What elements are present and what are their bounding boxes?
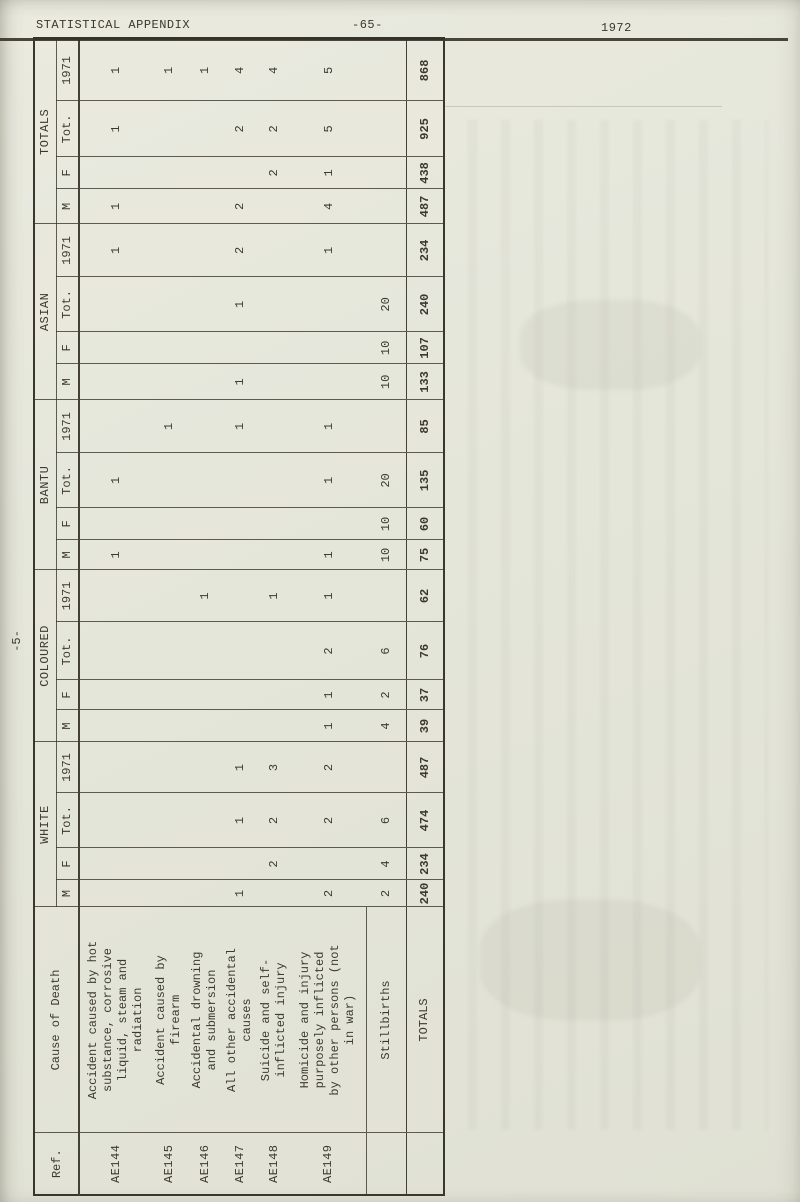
value-cell-asian-1971	[151, 224, 186, 277]
value-cell-bantu-tot	[256, 453, 291, 508]
value-cell-totals-1971: 4	[223, 39, 256, 101]
row-ref: AE145	[151, 1133, 186, 1195]
value-cell-white-tot: 1	[223, 793, 256, 848]
value-cell-asian-tot: 240	[406, 277, 444, 332]
value-cell-asian-m: 1	[223, 364, 256, 400]
row-ref	[366, 1133, 406, 1195]
value-cell-bantu-tot: 1	[79, 453, 151, 508]
row-ref: AE148	[256, 1133, 291, 1195]
value-cell-asian-tot: 20	[366, 277, 406, 332]
value-cell-white-1971	[151, 742, 186, 793]
value-cell-white-m	[79, 880, 151, 907]
value-cell-bantu-f	[151, 508, 186, 540]
value-cell-bantu-m	[186, 540, 223, 570]
value-cell-bantu-1971	[366, 400, 406, 453]
sub-header-totals-m: M	[56, 189, 79, 224]
faint-ruling-line	[444, 106, 722, 107]
value-cell-coloured-tot	[186, 622, 223, 680]
row-cause-of-death: Accident caused by firearm	[151, 907, 186, 1133]
group-header-asian: ASIAN	[34, 224, 56, 400]
group-header-totals: TOTALS	[34, 39, 56, 224]
value-cell-bantu-m	[223, 540, 256, 570]
value-cell-coloured-f	[256, 680, 291, 710]
value-cell-white-f	[223, 848, 256, 880]
value-cell-coloured-f: 37	[406, 680, 444, 710]
value-cell-asian-m	[151, 364, 186, 400]
value-cell-totals-f	[186, 157, 223, 189]
value-cell-totals-m	[186, 189, 223, 224]
value-cell-coloured-1971: 1	[291, 570, 366, 622]
value-cell-asian-f: 10	[366, 332, 406, 364]
value-cell-asian-tot: 1	[223, 277, 256, 332]
value-cell-bantu-1971: 85	[406, 400, 444, 453]
value-cell-totals-1971: 5	[291, 39, 366, 101]
sub-header-asian-m: M	[56, 364, 79, 400]
page-header: STATISTICAL APPENDIX -65- 1972	[0, 18, 800, 38]
value-cell-coloured-m	[186, 710, 223, 742]
value-cell-white-1971: 487	[406, 742, 444, 793]
value-cell-asian-tot	[79, 277, 151, 332]
value-cell-asian-m: 10	[366, 364, 406, 400]
value-cell-asian-1971: 2	[223, 224, 256, 277]
value-cell-coloured-m	[256, 710, 291, 742]
sub-header-white-m: M	[56, 880, 79, 907]
table-row: AE149Homicide and injury purposely infli…	[291, 39, 366, 1195]
value-cell-asian-1971	[366, 224, 406, 277]
value-cell-white-f	[186, 848, 223, 880]
value-cell-totals-tot: 2	[256, 101, 291, 157]
sub-header-coloured-m: M	[56, 710, 79, 742]
value-cell-bantu-m: 75	[406, 540, 444, 570]
value-cell-white-m: 2	[291, 880, 366, 907]
value-cell-white-m	[186, 880, 223, 907]
value-cell-totals-f	[151, 157, 186, 189]
value-cell-asian-f	[256, 332, 291, 364]
value-cell-coloured-tot: 2	[291, 622, 366, 680]
value-cell-totals-f	[223, 157, 256, 189]
value-cell-totals-f	[79, 157, 151, 189]
rotated-table-region: Ref.Cause of DeathWHITECOLOUREDBANTUASIA…	[33, 40, 443, 1196]
value-cell-totals-1971: 868	[406, 39, 444, 101]
value-cell-coloured-tot	[256, 622, 291, 680]
value-cell-asian-tot	[256, 277, 291, 332]
sheet-margin-label: -5-	[10, 630, 24, 652]
value-cell-coloured-tot: 6	[366, 622, 406, 680]
value-cell-white-m	[151, 880, 186, 907]
bleed-through-ghost	[480, 900, 700, 1020]
value-cell-asian-m	[79, 364, 151, 400]
table-row: AE145Accident caused by firearm11	[151, 39, 186, 1195]
table-row: Stillbirths246426101020101020	[366, 39, 406, 1195]
col-header-ref: Ref.	[34, 1133, 79, 1195]
table-row: AE147All other accidental causes11111122…	[223, 39, 256, 1195]
row-ref: AE149	[291, 1133, 366, 1195]
value-cell-coloured-tot	[79, 622, 151, 680]
value-cell-coloured-1971: 1	[256, 570, 291, 622]
value-cell-white-f: 234	[406, 848, 444, 880]
value-cell-coloured-f	[186, 680, 223, 710]
row-cause-of-death: All other accidental causes	[223, 907, 256, 1133]
value-cell-asian-1971: 234	[406, 224, 444, 277]
value-cell-bantu-1971: 1	[223, 400, 256, 453]
value-cell-asian-tot	[186, 277, 223, 332]
value-cell-coloured-tot	[151, 622, 186, 680]
sub-header-coloured-tot: Tot.	[56, 622, 79, 680]
sub-header-asian-tot: Tot.	[56, 277, 79, 332]
value-cell-white-f	[79, 848, 151, 880]
value-cell-asian-m: 133	[406, 364, 444, 400]
value-cell-totals-m	[256, 189, 291, 224]
table-row: AE144Accident caused by hot substance, c…	[79, 39, 151, 1195]
value-cell-totals-1971: 4	[256, 39, 291, 101]
value-cell-totals-tot	[151, 101, 186, 157]
value-cell-totals-f: 438	[406, 157, 444, 189]
value-cell-bantu-1971	[256, 400, 291, 453]
row-cause-of-death: Homicide and injury purposely inflicted …	[291, 907, 366, 1133]
value-cell-white-f	[151, 848, 186, 880]
value-cell-asian-m	[256, 364, 291, 400]
value-cell-asian-tot	[291, 277, 366, 332]
value-cell-coloured-1971	[223, 570, 256, 622]
value-cell-asian-m	[186, 364, 223, 400]
row-ref	[406, 1133, 444, 1195]
value-cell-asian-f	[186, 332, 223, 364]
value-cell-bantu-m	[256, 540, 291, 570]
sub-header-bantu-m: M	[56, 540, 79, 570]
value-cell-totals-1971: 1	[186, 39, 223, 101]
value-cell-totals-1971: 1	[79, 39, 151, 101]
sub-header-bantu-f: F	[56, 508, 79, 540]
group-header-bantu: BANTU	[34, 400, 56, 570]
scanned-document-page: { "page": { "header_left": "STATISTICAL …	[0, 0, 800, 1202]
sub-header-white-tot: Tot.	[56, 793, 79, 848]
value-cell-totals-m	[151, 189, 186, 224]
value-cell-coloured-m	[223, 710, 256, 742]
row-cause-of-death: Stillbirths	[366, 907, 406, 1133]
row-ref: AE146	[186, 1133, 223, 1195]
value-cell-white-1971	[366, 742, 406, 793]
group-header-white: WHITE	[34, 742, 56, 907]
value-cell-bantu-1971	[186, 400, 223, 453]
value-cell-coloured-m: 4	[366, 710, 406, 742]
sub-header-coloured-1971: 1971	[56, 570, 79, 622]
row-ref: AE147	[223, 1133, 256, 1195]
value-cell-totals-m: 487	[406, 189, 444, 224]
value-cell-bantu-tot	[151, 453, 186, 508]
value-cell-white-tot: 2	[291, 793, 366, 848]
value-cell-coloured-f	[223, 680, 256, 710]
value-cell-white-tot	[79, 793, 151, 848]
col-header-cause: Cause of Death	[34, 907, 79, 1133]
value-cell-bantu-f: 60	[406, 508, 444, 540]
value-cell-white-1971	[186, 742, 223, 793]
value-cell-asian-f	[223, 332, 256, 364]
value-cell-asian-f	[79, 332, 151, 364]
value-cell-bantu-f	[223, 508, 256, 540]
value-cell-totals-1971: 1	[151, 39, 186, 101]
value-cell-coloured-m: 1	[291, 710, 366, 742]
value-cell-bantu-tot	[223, 453, 256, 508]
value-cell-totals-tot: 2	[223, 101, 256, 157]
value-cell-bantu-1971: 1	[291, 400, 366, 453]
sub-header-white-f: F	[56, 848, 79, 880]
row-cause-of-death: TOTALS	[406, 907, 444, 1133]
value-cell-totals-m	[366, 189, 406, 224]
row-cause-of-death: Accident caused by hot substance, corros…	[79, 907, 151, 1133]
value-cell-coloured-1971	[366, 570, 406, 622]
value-cell-bantu-f	[291, 508, 366, 540]
value-cell-coloured-1971	[79, 570, 151, 622]
row-cause-of-death: Accidental drowning and submersion	[186, 907, 223, 1133]
value-cell-asian-m	[291, 364, 366, 400]
value-cell-bantu-f	[256, 508, 291, 540]
value-cell-bantu-tot: 1	[291, 453, 366, 508]
value-cell-totals-tot: 1	[79, 101, 151, 157]
value-cell-asian-1971: 1	[291, 224, 366, 277]
value-cell-totals-tot: 925	[406, 101, 444, 157]
value-cell-white-tot	[151, 793, 186, 848]
table-row: AE148Suicide and self- inflicted injury2…	[256, 39, 291, 1195]
value-cell-totals-m: 1	[79, 189, 151, 224]
table-row: AE146Accidental drowning and submersion1…	[186, 39, 223, 1195]
page-header-title: STATISTICAL APPENDIX	[36, 18, 190, 32]
value-cell-bantu-tot: 20	[366, 453, 406, 508]
value-cell-coloured-f: 2	[366, 680, 406, 710]
value-cell-coloured-m: 39	[406, 710, 444, 742]
sub-header-asian-1971: 1971	[56, 224, 79, 277]
sub-header-white-1971: 1971	[56, 742, 79, 793]
sub-header-totals-tot: Tot.	[56, 101, 79, 157]
value-cell-totals-1971	[366, 39, 406, 101]
table-row: TOTALS2402344744873937766275601358513310…	[406, 39, 444, 1195]
value-cell-coloured-m	[79, 710, 151, 742]
value-cell-asian-1971	[256, 224, 291, 277]
value-cell-coloured-tot: 76	[406, 622, 444, 680]
value-cell-bantu-1971	[79, 400, 151, 453]
value-cell-bantu-m: 1	[79, 540, 151, 570]
value-cell-totals-f: 1	[291, 157, 366, 189]
value-cell-bantu-m: 10	[366, 540, 406, 570]
row-cause-of-death: Suicide and self- inflicted injury	[256, 907, 291, 1133]
value-cell-white-f: 4	[366, 848, 406, 880]
value-cell-white-m: 2	[366, 880, 406, 907]
value-cell-bantu-f	[79, 508, 151, 540]
value-cell-totals-f: 2	[256, 157, 291, 189]
value-cell-totals-f	[366, 157, 406, 189]
value-cell-totals-tot	[186, 101, 223, 157]
value-cell-coloured-1971: 62	[406, 570, 444, 622]
value-cell-asian-f	[151, 332, 186, 364]
value-cell-asian-tot	[151, 277, 186, 332]
value-cell-white-1971: 2	[291, 742, 366, 793]
bleed-through-ghost	[468, 120, 768, 1130]
value-cell-coloured-1971: 1	[186, 570, 223, 622]
value-cell-white-f: 2	[256, 848, 291, 880]
value-cell-asian-f	[291, 332, 366, 364]
value-cell-totals-tot: 5	[291, 101, 366, 157]
value-cell-totals-m: 4	[291, 189, 366, 224]
sub-header-totals-f: F	[56, 157, 79, 189]
value-cell-coloured-m	[151, 710, 186, 742]
value-cell-coloured-f	[151, 680, 186, 710]
rotated-table-inner: Ref.Cause of DeathWHITECOLOUREDBANTUASIA…	[33, 40, 443, 1196]
value-cell-coloured-f: 1	[291, 680, 366, 710]
sub-header-totals-1971: 1971	[56, 39, 79, 101]
sub-header-coloured-f: F	[56, 680, 79, 710]
group-header-coloured: COLOURED	[34, 570, 56, 742]
value-cell-bantu-1971: 1	[151, 400, 186, 453]
value-cell-coloured-f	[79, 680, 151, 710]
value-cell-bantu-m: 1	[291, 540, 366, 570]
value-cell-white-tot: 474	[406, 793, 444, 848]
value-cell-white-1971: 1	[223, 742, 256, 793]
value-cell-totals-tot	[366, 101, 406, 157]
value-cell-white-m: 1	[223, 880, 256, 907]
value-cell-white-1971: 3	[256, 742, 291, 793]
page-number-label: -65-	[352, 18, 383, 32]
value-cell-asian-1971: 1	[79, 224, 151, 277]
value-cell-bantu-tot	[186, 453, 223, 508]
row-ref: AE144	[79, 1133, 151, 1195]
mortality-statistics-table: Ref.Cause of DeathWHITECOLOUREDBANTUASIA…	[33, 37, 445, 1196]
value-cell-bantu-f: 10	[366, 508, 406, 540]
year-label: 1972	[601, 21, 632, 35]
value-cell-white-1971	[79, 742, 151, 793]
value-cell-bantu-tot: 135	[406, 453, 444, 508]
value-cell-bantu-m	[151, 540, 186, 570]
value-cell-asian-f: 107	[406, 332, 444, 364]
value-cell-bantu-f	[186, 508, 223, 540]
value-cell-coloured-tot	[223, 622, 256, 680]
value-cell-white-tot: 6	[366, 793, 406, 848]
value-cell-white-tot: 2	[256, 793, 291, 848]
value-cell-white-m: 240	[406, 880, 444, 907]
sub-header-bantu-tot: Tot.	[56, 453, 79, 508]
value-cell-totals-m: 2	[223, 189, 256, 224]
bleed-through-ghost	[520, 300, 700, 390]
sub-header-bantu-1971: 1971	[56, 400, 79, 453]
value-cell-white-m	[256, 880, 291, 907]
value-cell-asian-1971	[186, 224, 223, 277]
value-cell-white-tot	[186, 793, 223, 848]
value-cell-coloured-1971	[151, 570, 186, 622]
value-cell-white-f	[291, 848, 366, 880]
sub-header-asian-f: F	[56, 332, 79, 364]
